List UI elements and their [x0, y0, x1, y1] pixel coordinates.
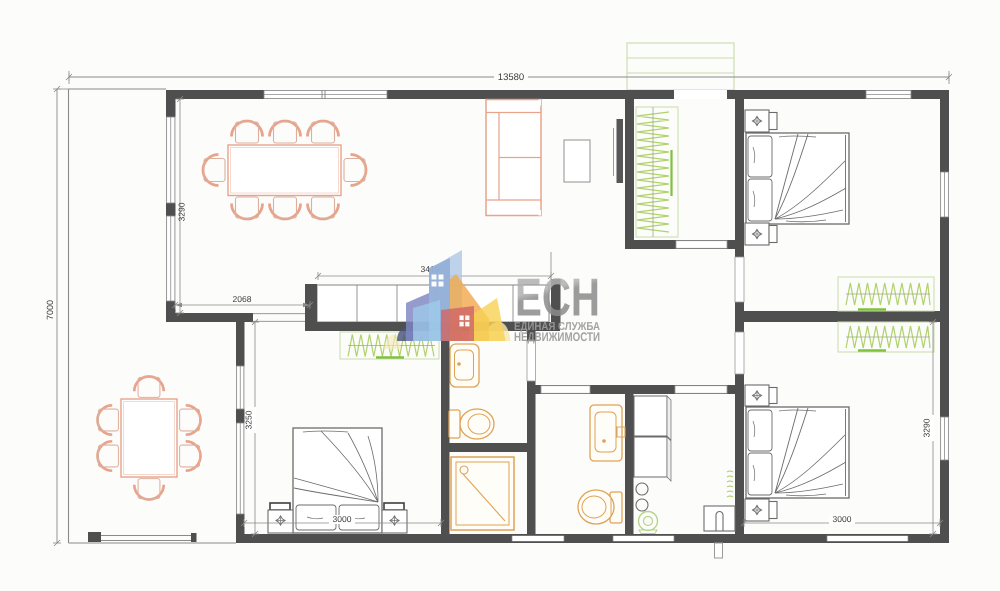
- svg-text:3290: 3290: [922, 418, 932, 437]
- svg-text:3000: 3000: [333, 514, 352, 524]
- svg-text:ЕСН: ЕСН: [515, 269, 600, 328]
- svg-text:13580: 13580: [498, 72, 524, 83]
- svg-text:НЕДВИЖИМОСТИ: НЕДВИЖИМОСТИ: [514, 330, 600, 344]
- svg-text:2068: 2068: [233, 294, 252, 304]
- svg-text:3000: 3000: [833, 514, 852, 524]
- svg-text:3250: 3250: [244, 410, 254, 429]
- svg-text:3290: 3290: [177, 202, 187, 221]
- svg-text:7000: 7000: [45, 300, 55, 320]
